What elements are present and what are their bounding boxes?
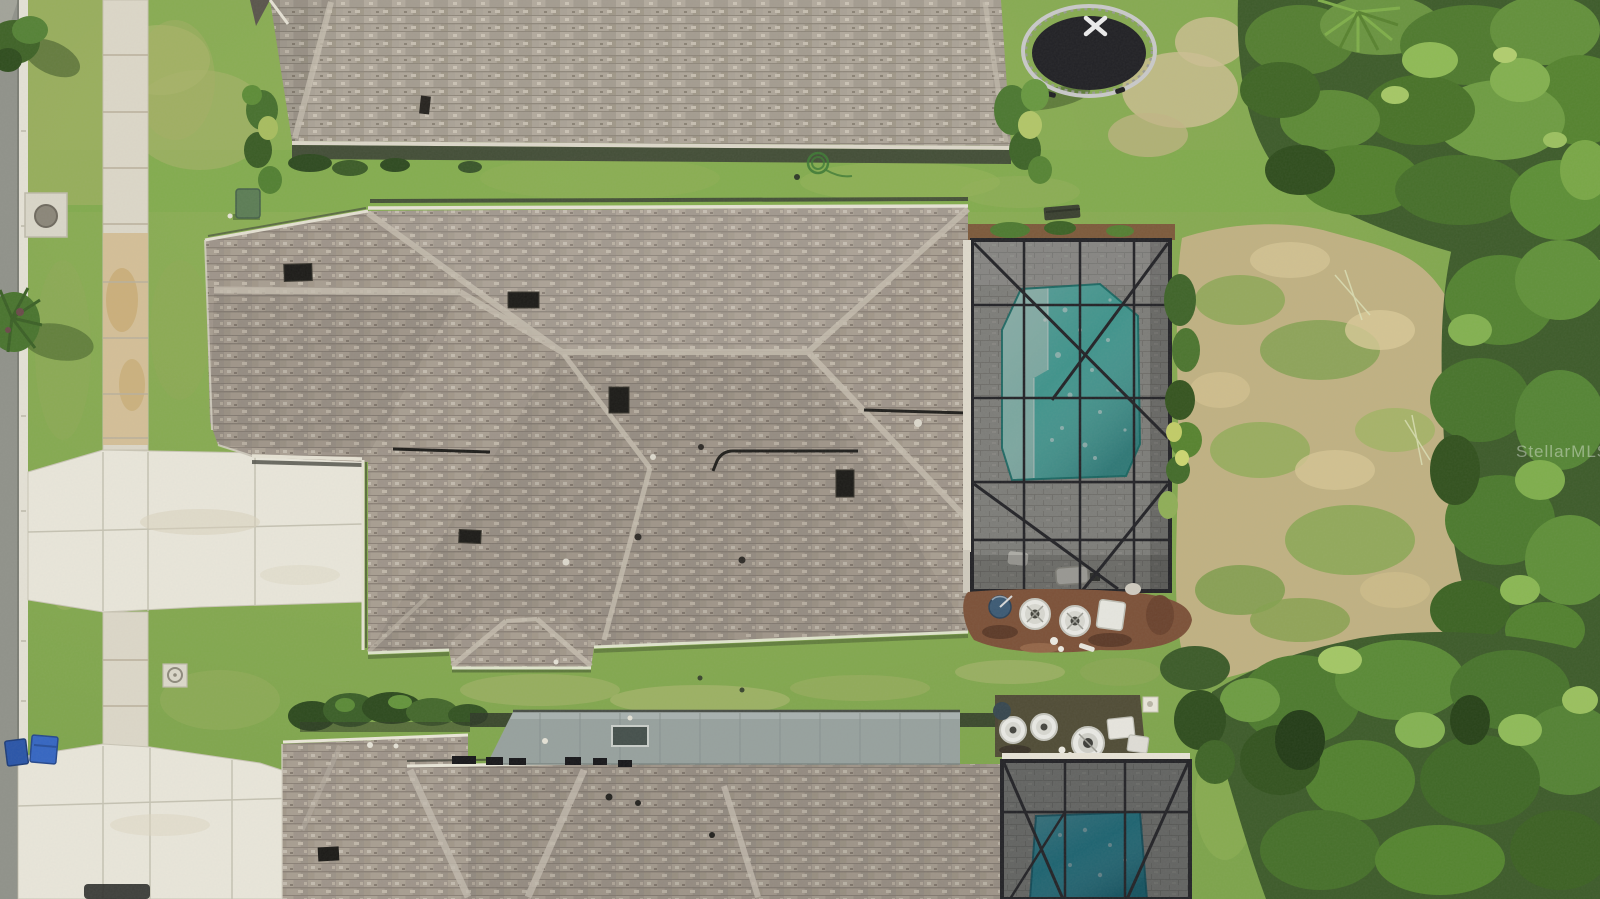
watermark-text: StellarMLS <box>1516 442 1600 461</box>
aerial-photo: StellarMLS <box>0 0 1600 899</box>
photo-grain <box>0 0 1600 899</box>
